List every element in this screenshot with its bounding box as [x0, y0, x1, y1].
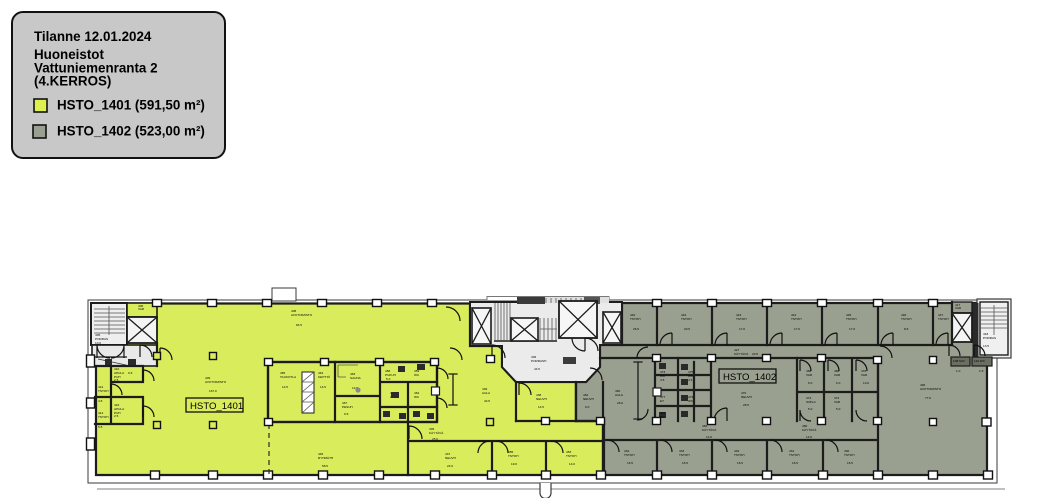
svg-text:4.5: 4.5 [688, 378, 693, 382]
svg-text:4.5: 4.5 [98, 399, 103, 403]
svg-text:TAUKOTLA: TAUKOTLA [280, 375, 297, 379]
svg-text:14.0: 14.0 [569, 462, 575, 466]
svg-text:20.5: 20.5 [684, 327, 690, 331]
svg-text:19.0: 19.0 [511, 462, 517, 466]
svg-text:26.0: 26.0 [617, 401, 623, 405]
svg-text:TSTOH: TSTOH [938, 317, 948, 321]
svg-text:14.0: 14.0 [706, 435, 712, 439]
svg-text:17.0: 17.0 [849, 327, 855, 331]
svg-text:AVOTOIMISTO: AVOTOIMISTO [291, 313, 313, 317]
svg-text:16.5: 16.5 [627, 461, 633, 465]
svg-text:RYHMÄTH: RYHMÄTH [318, 456, 333, 460]
svg-text:KÄYTÄVÄ: KÄYTÄVÄ [802, 428, 817, 432]
svg-text:TSTOH: TSTOH [508, 454, 518, 458]
svg-text:VAR: VAR [861, 373, 868, 377]
svg-text:TSTOH: TSTOH [789, 453, 799, 457]
svg-text:6.0: 6.0 [808, 381, 813, 385]
svg-text:SAUNA: SAUNA [350, 376, 362, 380]
svg-text:VAR: VAR [806, 373, 813, 377]
svg-text:HSTO_1402 (523,00 m²): HSTO_1402 (523,00 m²) [57, 124, 205, 139]
svg-text:TSTOH: TSTOH [98, 389, 108, 393]
svg-text:77.0: 77.0 [925, 396, 931, 400]
svg-text:17.0: 17.0 [794, 327, 800, 331]
svg-text:0.5: 0.5 [128, 371, 133, 375]
svg-text:WC: WC [414, 395, 420, 399]
svg-text:8.5: 8.5 [904, 327, 909, 331]
svg-text:110 WC: 110 WC [974, 359, 986, 363]
svg-text:TSTOH: TSTOH [566, 454, 576, 458]
svg-text:VAR: VAR [955, 306, 962, 310]
svg-text:6.0: 6.0 [836, 381, 841, 385]
svg-text:9.0: 9.0 [585, 405, 590, 409]
svg-text:108 SIIV: 108 SIIV [953, 359, 966, 363]
svg-text:HSTO_1401: HSTO_1401 [190, 401, 243, 412]
svg-text:HSTO_1401 (591,50 m²): HSTO_1401 (591,50 m²) [57, 98, 205, 113]
svg-text:VAR: VAR [834, 373, 841, 377]
svg-text:16.5: 16.5 [737, 461, 743, 465]
svg-text:16.5: 16.5 [682, 461, 688, 465]
svg-text:1.0: 1.0 [956, 369, 961, 373]
svg-text:17.0: 17.0 [739, 327, 745, 331]
svg-text:TSTOH: TSTOH [791, 317, 801, 321]
svg-text:TSTOH: TSTOH [736, 317, 746, 321]
svg-text:25.0: 25.0 [432, 437, 438, 441]
svg-text:PORRAS: PORRAS [983, 336, 996, 340]
svg-text:TSTOH: TSTOH [681, 317, 691, 321]
svg-text:16.5: 16.5 [792, 461, 798, 465]
svg-text:28.5: 28.5 [743, 403, 749, 407]
svg-text:WC: WC [688, 399, 694, 403]
svg-text:NEUVH: NEUVH [536, 397, 547, 401]
svg-text:AVOTOIMISTO: AVOTOIMISTO [205, 380, 227, 384]
svg-text:TSTOH: TSTOH [624, 453, 634, 457]
svg-text:TSTOH: TSTOH [901, 317, 911, 321]
svg-text:5.0: 5.0 [836, 407, 841, 411]
svg-text:5.5: 5.5 [98, 425, 103, 429]
svg-text:NEUVH: NEUVH [583, 397, 594, 401]
svg-text:5.0: 5.0 [386, 377, 391, 381]
svg-text:4.5: 4.5 [660, 378, 665, 382]
svg-text:TSTOH: TSTOH [679, 453, 689, 457]
svg-text:20.5: 20.5 [752, 352, 758, 356]
svg-text:PORRASH: PORRASH [531, 359, 546, 363]
svg-text:(4.KERROS): (4.KERROS) [34, 74, 111, 89]
svg-text:14.5: 14.5 [538, 405, 544, 409]
svg-text:TSTOH: TSTOH [734, 453, 744, 457]
svg-text:TSTOH: TSTOH [846, 317, 856, 321]
svg-text:167.0: 167.0 [209, 389, 217, 393]
svg-text:2.5: 2.5 [114, 378, 119, 382]
svg-text:58.5: 58.5 [322, 464, 328, 468]
svg-text:14.5: 14.5 [320, 385, 326, 389]
svg-text:84.5: 84.5 [296, 323, 302, 327]
svg-text:KÄYTÄVÄ: KÄYTÄVÄ [702, 428, 717, 432]
svg-text:TSTOH: TSTOH [98, 415, 108, 419]
svg-text:44.5: 44.5 [484, 399, 490, 403]
svg-text:NEUVH: NEUVH [445, 456, 456, 460]
svg-text:PESUH: PESUH [342, 405, 353, 409]
svg-text:AULA: AULA [615, 393, 624, 397]
svg-text:1.5: 1.5 [979, 369, 984, 373]
svg-text:WC: WC [414, 373, 420, 377]
svg-text:44.5: 44.5 [534, 367, 540, 371]
svg-text:TSTOH: TSTOH [630, 317, 640, 321]
svg-text:16.5: 16.5 [847, 461, 853, 465]
svg-text:Tilanne 12.01.2024: Tilanne 12.01.2024 [34, 29, 152, 44]
svg-text:13.0: 13.0 [863, 381, 869, 385]
svg-text:HSTO_1402: HSTO_1402 [723, 372, 776, 383]
svg-text:14.5: 14.5 [282, 385, 288, 389]
svg-text:VAR: VAR [138, 307, 145, 311]
svg-text:26.5: 26.5 [633, 327, 639, 331]
svg-text:AVOTOIMISTO: AVOTOIMISTO [920, 387, 942, 391]
svg-text:SIIPLA: SIIPLA [806, 400, 817, 404]
svg-text:14.0: 14.0 [806, 435, 812, 439]
svg-text:KEITTIÖ: KEITTIÖ [318, 375, 331, 379]
svg-text:KÄYTÄVÄ: KÄYTÄVÄ [734, 352, 749, 356]
svg-text:13.5: 13.5 [983, 344, 989, 348]
svg-text:2.5: 2.5 [114, 414, 119, 418]
svg-text:KÄYTÄVÄ: KÄYTÄVÄ [429, 431, 444, 435]
svg-text:24.0: 24.0 [447, 464, 453, 468]
svg-text:VAR: VAR [834, 400, 841, 404]
svg-text:TSTOH: TSTOH [844, 453, 854, 457]
svg-text:ET: ET [660, 399, 664, 403]
svg-text:9.5: 9.5 [344, 412, 349, 416]
svg-text:NEUVH: NEUVH [741, 395, 752, 399]
svg-text:AULA: AULA [482, 391, 491, 395]
svg-text:5.0: 5.0 [808, 407, 813, 411]
